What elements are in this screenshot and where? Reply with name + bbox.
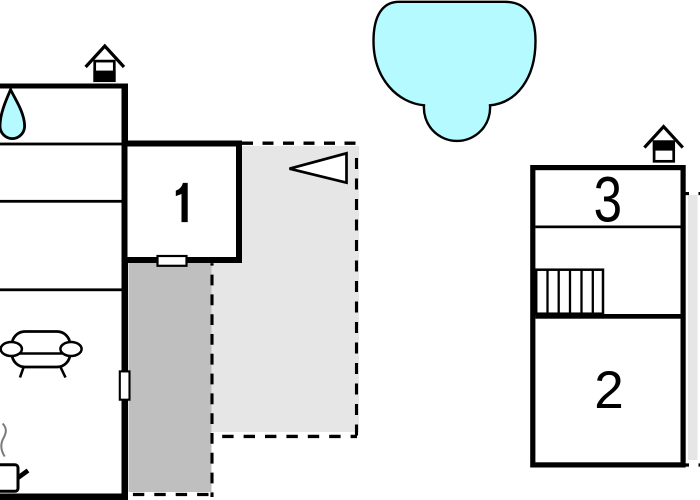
svg-text:2: 2 <box>594 361 623 420</box>
svg-text:3: 3 <box>594 165 622 236</box>
